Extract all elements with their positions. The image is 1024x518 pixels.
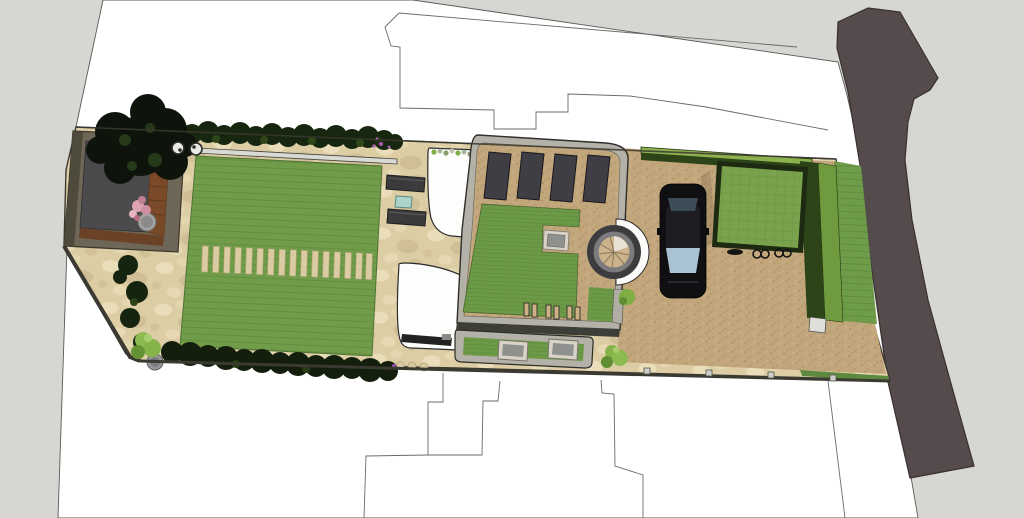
car: [657, 184, 709, 298]
lower-green-roof: [455, 330, 593, 368]
hedge-end-post: [809, 317, 826, 333]
render-viewport[interactable]: [0, 0, 1024, 518]
site-plan-render: [0, 0, 1024, 518]
carport: [701, 161, 808, 258]
small-bush-path-top: [374, 136, 384, 146]
green-patch-right: [587, 287, 614, 322]
teal-table: [395, 196, 412, 208]
bush-right-of-house: [619, 289, 635, 305]
skylight-main: [543, 230, 569, 251]
sedum-roof: [463, 204, 580, 318]
car-windshield: [666, 248, 700, 273]
